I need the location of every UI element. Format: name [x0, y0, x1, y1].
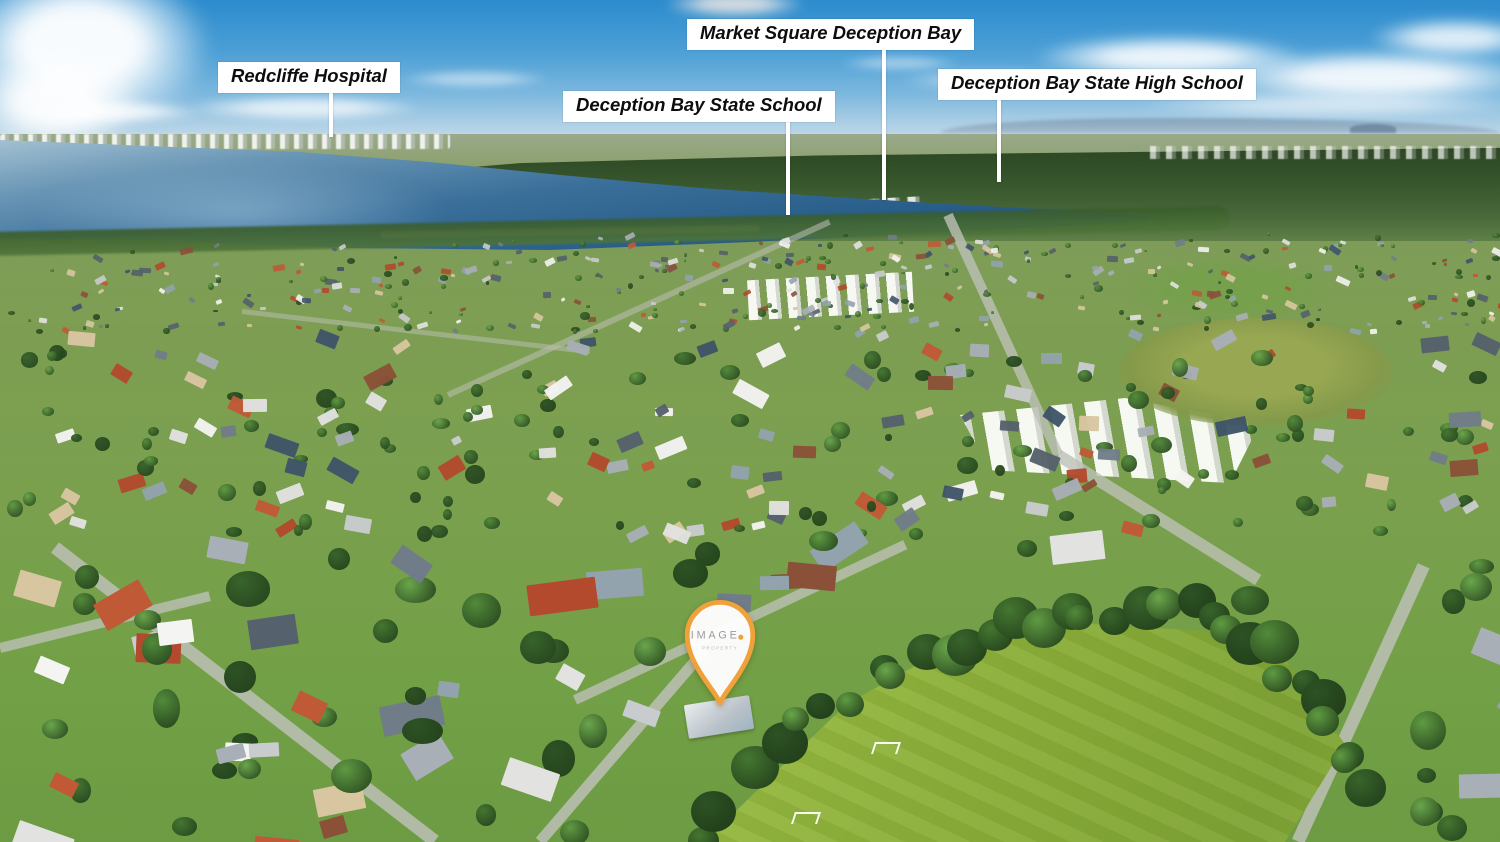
tree — [512, 240, 515, 244]
tree — [1256, 398, 1268, 410]
house-roof — [915, 253, 926, 259]
tree — [873, 314, 882, 319]
house-roof — [699, 249, 704, 253]
house-roof — [1041, 353, 1062, 364]
tree — [1299, 304, 1304, 309]
tree — [398, 309, 404, 315]
house-roof — [247, 324, 252, 327]
tree — [1198, 469, 1209, 479]
house-roof — [786, 562, 837, 591]
tree — [1144, 250, 1147, 253]
house-roof — [132, 270, 143, 277]
house-roof — [928, 241, 941, 248]
tree — [28, 319, 31, 322]
tree — [443, 509, 452, 520]
house-roof — [506, 260, 512, 264]
tree — [1059, 511, 1074, 522]
tree — [589, 438, 599, 446]
house-roof — [680, 319, 687, 323]
house-roof — [39, 317, 48, 323]
property-marker-pin: IMAGE PROPERTY — [680, 596, 760, 708]
house-roof — [1097, 449, 1119, 462]
tree — [105, 324, 110, 328]
leader-line — [997, 93, 1001, 182]
tree — [529, 258, 537, 263]
house-roof — [157, 619, 195, 646]
house-roof — [684, 274, 693, 281]
tree — [983, 292, 992, 297]
tree — [1432, 262, 1436, 265]
tree — [962, 436, 974, 447]
house-roof — [1466, 239, 1472, 244]
tree — [864, 351, 881, 369]
house-roof — [1465, 323, 1469, 326]
tree — [1316, 318, 1319, 321]
tree — [522, 370, 532, 380]
tree — [1231, 586, 1269, 615]
annotation-label: Deception Bay State High School — [938, 69, 1256, 100]
tree — [1296, 496, 1313, 511]
tree — [1233, 518, 1243, 527]
tree — [50, 269, 54, 272]
tree — [691, 791, 736, 832]
tree — [819, 256, 826, 260]
tree — [679, 291, 685, 297]
tree — [1492, 256, 1500, 261]
house-roof — [769, 501, 790, 515]
house-roof — [792, 445, 815, 458]
house-roof — [817, 263, 826, 270]
tree — [553, 426, 563, 438]
house-roof — [1347, 408, 1365, 419]
tree — [1303, 386, 1313, 397]
tree — [1017, 540, 1038, 557]
tree — [1225, 295, 1230, 299]
tree — [476, 804, 497, 826]
tree — [1461, 312, 1468, 317]
house-roof — [649, 261, 659, 268]
tree — [580, 312, 590, 320]
tree — [1065, 274, 1071, 278]
house-roof — [67, 331, 96, 347]
tree — [431, 525, 448, 538]
tree — [806, 693, 835, 720]
annotation-label: Redcliffe Hospital — [218, 62, 400, 93]
house-roof — [948, 244, 955, 249]
tree — [514, 414, 530, 428]
tree — [767, 303, 772, 308]
house-roof — [723, 288, 734, 294]
house-roof — [1198, 247, 1209, 253]
tree — [465, 465, 485, 484]
tree — [238, 759, 261, 779]
pin-shape — [687, 602, 753, 703]
tree — [805, 261, 808, 264]
tree — [317, 428, 327, 437]
tree — [1065, 243, 1071, 248]
tree — [1128, 391, 1149, 410]
tree — [320, 276, 327, 282]
tree — [328, 548, 349, 571]
tree — [410, 492, 421, 503]
tree — [690, 324, 697, 329]
tree — [391, 302, 399, 308]
house-roof — [1452, 297, 1459, 302]
tree — [831, 274, 837, 280]
tree — [493, 260, 500, 266]
tree — [775, 263, 782, 269]
house-roof — [762, 256, 769, 261]
tree — [1231, 301, 1238, 307]
house-roof — [1148, 269, 1155, 275]
tree — [1065, 605, 1093, 630]
tree — [213, 310, 218, 313]
tree — [684, 259, 687, 262]
house-roof — [867, 307, 872, 310]
tree — [955, 328, 960, 332]
tree — [1345, 769, 1386, 807]
house-roof — [1428, 295, 1438, 301]
house-roof — [322, 288, 329, 293]
house-roof — [730, 465, 749, 480]
leader-line — [882, 42, 886, 200]
tree — [771, 309, 778, 313]
tree — [809, 531, 838, 551]
tree — [1262, 665, 1291, 692]
tree — [1158, 487, 1166, 494]
annotation-label: Deception Bay State School — [563, 91, 835, 122]
tree — [394, 256, 397, 259]
distant-city-strip — [1150, 146, 1500, 159]
tree — [1391, 244, 1396, 248]
house-roof — [1107, 255, 1119, 262]
tree — [331, 759, 372, 794]
tree — [337, 325, 343, 331]
tree — [901, 299, 909, 304]
tree — [1287, 415, 1303, 432]
tree — [1481, 317, 1486, 324]
tree — [1137, 320, 1144, 325]
tree — [374, 326, 380, 332]
tree — [142, 438, 152, 450]
pin-brand-text: IMAGE — [691, 629, 740, 641]
tree — [1396, 320, 1403, 325]
tree — [1418, 300, 1424, 306]
tree — [560, 820, 588, 842]
tree — [899, 241, 903, 244]
tree — [695, 542, 720, 566]
tree — [634, 637, 666, 666]
house-roof — [887, 235, 897, 241]
tree — [540, 399, 556, 412]
tree — [1373, 526, 1388, 536]
tree — [1251, 350, 1272, 367]
cloud — [400, 70, 550, 88]
tree — [385, 284, 392, 289]
house-roof — [337, 267, 344, 272]
house-roof — [1322, 496, 1337, 508]
house-roof — [1079, 416, 1100, 432]
tree — [1469, 371, 1487, 384]
tree — [1276, 433, 1290, 442]
distant-mountain-peak — [1350, 124, 1396, 133]
house-roof — [220, 425, 236, 438]
tree — [484, 517, 500, 530]
tree — [782, 707, 809, 732]
tree — [995, 465, 1005, 476]
tree — [1027, 259, 1031, 264]
tree — [226, 571, 271, 606]
tree — [1224, 249, 1229, 253]
tree — [1250, 620, 1299, 665]
tree — [464, 450, 478, 465]
tree — [71, 434, 82, 442]
house-roof — [1448, 411, 1481, 428]
tree — [799, 507, 812, 520]
tree — [1172, 358, 1188, 377]
tree — [579, 714, 607, 749]
house-roof — [822, 301, 831, 306]
house-roof — [651, 301, 656, 305]
tree — [471, 405, 483, 415]
tree — [881, 325, 886, 329]
house-roof — [248, 742, 278, 758]
tree — [812, 511, 827, 526]
tree — [42, 719, 69, 739]
house-roof — [786, 253, 794, 257]
tree — [47, 351, 57, 362]
tree — [1357, 267, 1364, 272]
leader-line — [329, 88, 333, 137]
house-roof — [1314, 428, 1335, 442]
house-roof — [1450, 459, 1479, 477]
tree — [144, 456, 159, 466]
tree — [462, 593, 501, 629]
tree — [901, 272, 905, 275]
tree — [520, 631, 555, 664]
tree — [1441, 428, 1458, 442]
house-roof — [979, 316, 990, 321]
tree — [405, 687, 426, 704]
tree — [93, 314, 101, 320]
tree — [616, 521, 624, 530]
tree — [652, 313, 658, 318]
soccer-goal — [871, 742, 901, 754]
tree — [909, 528, 924, 540]
tree — [130, 250, 135, 255]
house-roof — [991, 260, 1004, 267]
tree — [824, 436, 842, 452]
tree — [1204, 326, 1209, 332]
tree — [1226, 289, 1233, 294]
aerial-photo: IMAGE PROPERTY Redcliffe Hospital Market… — [0, 0, 1500, 842]
house-roof — [1420, 335, 1450, 353]
tree — [957, 457, 978, 475]
tree — [1204, 316, 1212, 323]
cloud — [190, 95, 420, 121]
tree — [402, 718, 443, 744]
tree — [23, 492, 37, 506]
tree — [1225, 470, 1240, 480]
tree — [1486, 275, 1491, 280]
tree — [1410, 711, 1447, 750]
tree — [674, 352, 696, 365]
tree — [172, 817, 197, 836]
house-roof — [1370, 329, 1377, 335]
house-roof — [793, 307, 798, 310]
tree — [1467, 299, 1475, 307]
house-roof — [759, 576, 788, 591]
pin-brand-dot — [738, 635, 743, 640]
house-roof — [260, 307, 266, 310]
tree — [1307, 322, 1314, 329]
tree — [380, 437, 390, 449]
tree — [212, 762, 237, 780]
tree — [1267, 232, 1271, 235]
house-roof — [1324, 265, 1332, 271]
house-roof — [1000, 420, 1020, 432]
tree — [1121, 455, 1137, 472]
house-roof — [970, 344, 990, 358]
house-roof — [797, 316, 806, 321]
house-roof — [1473, 274, 1478, 277]
tree — [398, 296, 402, 300]
house-roof — [538, 447, 555, 458]
tree — [834, 325, 841, 330]
tree — [373, 619, 398, 643]
tree — [417, 526, 433, 542]
house-roof — [247, 294, 251, 297]
tree — [218, 484, 236, 501]
house-roof — [243, 399, 267, 412]
soccer-goal — [791, 812, 821, 824]
tree — [1338, 243, 1342, 247]
tree — [289, 280, 293, 283]
house-roof — [350, 288, 360, 294]
tree — [1119, 310, 1124, 315]
tree — [573, 251, 579, 256]
tree — [1376, 270, 1382, 276]
tree — [629, 372, 646, 385]
leader-line — [786, 115, 790, 215]
tree — [299, 514, 312, 530]
house-roof — [1459, 774, 1500, 799]
pin-subtitle-text: PROPERTY — [702, 646, 738, 651]
house-roof — [543, 292, 551, 298]
house-roof — [1425, 324, 1430, 328]
tree — [575, 275, 582, 281]
house-roof — [1207, 291, 1215, 298]
tree — [1146, 588, 1182, 621]
tree — [1006, 356, 1022, 367]
tree — [253, 481, 266, 495]
tree — [1013, 445, 1032, 458]
tree — [36, 329, 43, 334]
annotation-label: Market Square Deception Bay — [687, 19, 974, 50]
cloud — [20, 100, 200, 124]
house-roof — [1451, 312, 1457, 315]
tree — [855, 311, 861, 317]
tree — [45, 366, 54, 375]
tree — [471, 384, 483, 397]
tree — [617, 291, 621, 294]
tree — [75, 565, 99, 589]
tree — [432, 418, 450, 429]
house-roof — [928, 376, 953, 390]
